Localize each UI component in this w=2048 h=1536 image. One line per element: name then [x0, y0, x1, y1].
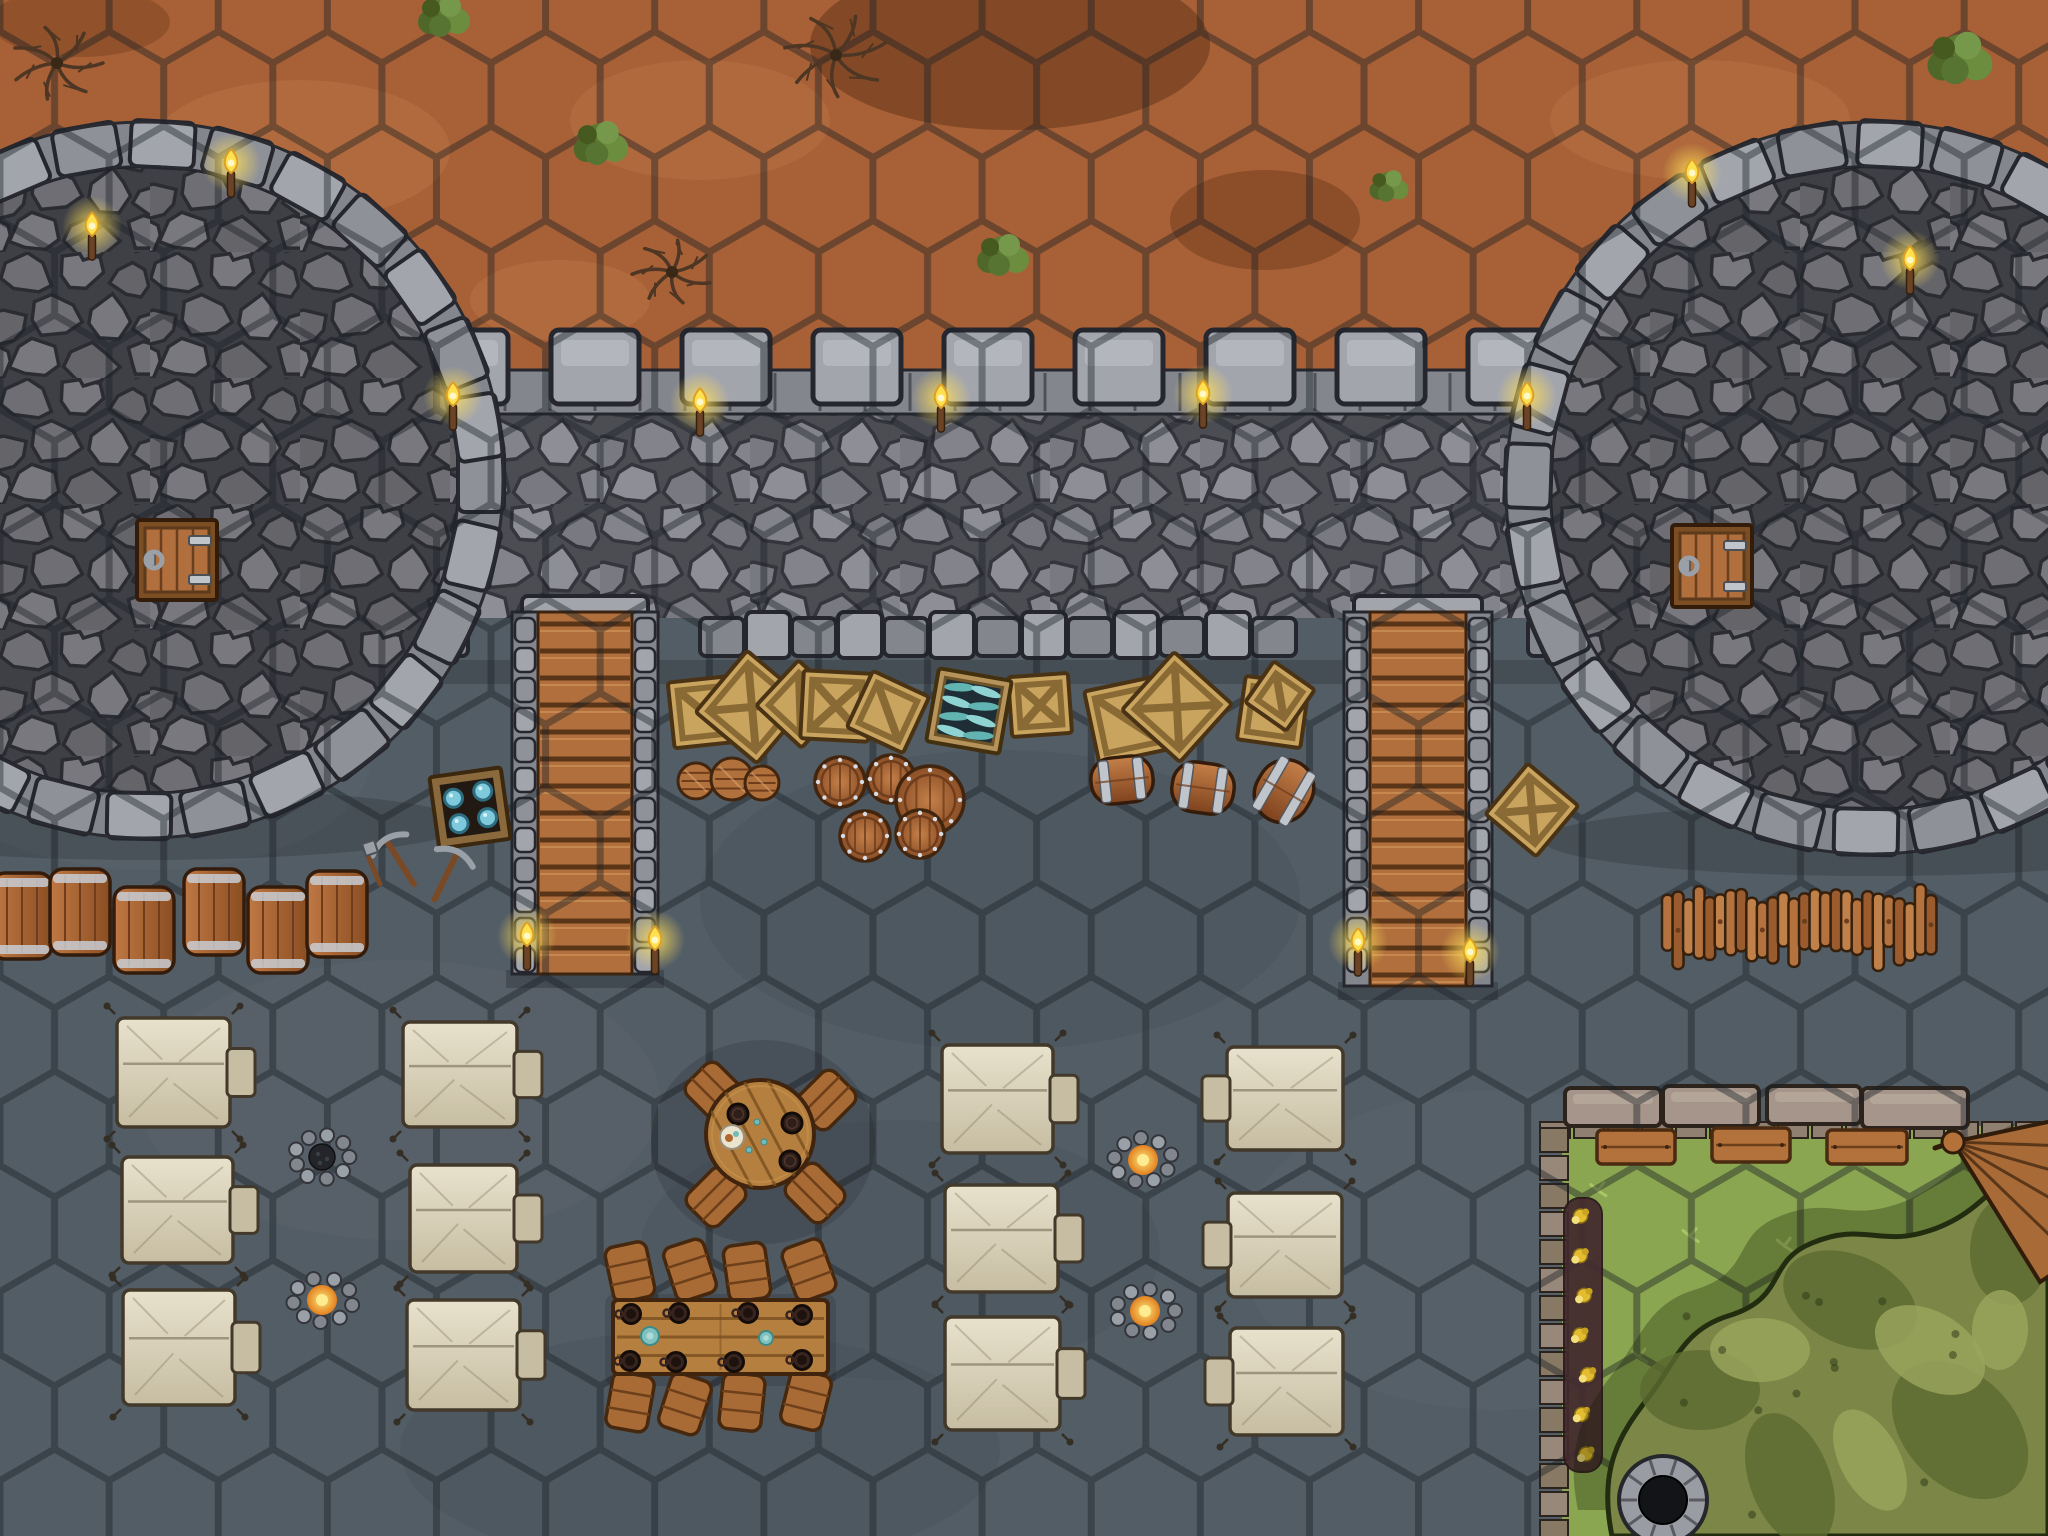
round-table	[651, 1040, 875, 1244]
battle-map-stage	[0, 0, 2048, 1536]
west-tower-hatch	[137, 520, 217, 600]
open-crate-gems	[429, 767, 510, 848]
crate	[1008, 673, 1072, 737]
hex-battle-map	[0, 0, 2048, 1536]
east-tower-hatch	[1672, 525, 1752, 607]
bench	[1597, 1130, 1675, 1164]
stone-well	[1619, 1456, 1707, 1536]
bench	[1712, 1128, 1790, 1162]
garden-benches	[1597, 1128, 1907, 1164]
fish-crate	[926, 668, 1012, 754]
bench	[1827, 1130, 1907, 1164]
